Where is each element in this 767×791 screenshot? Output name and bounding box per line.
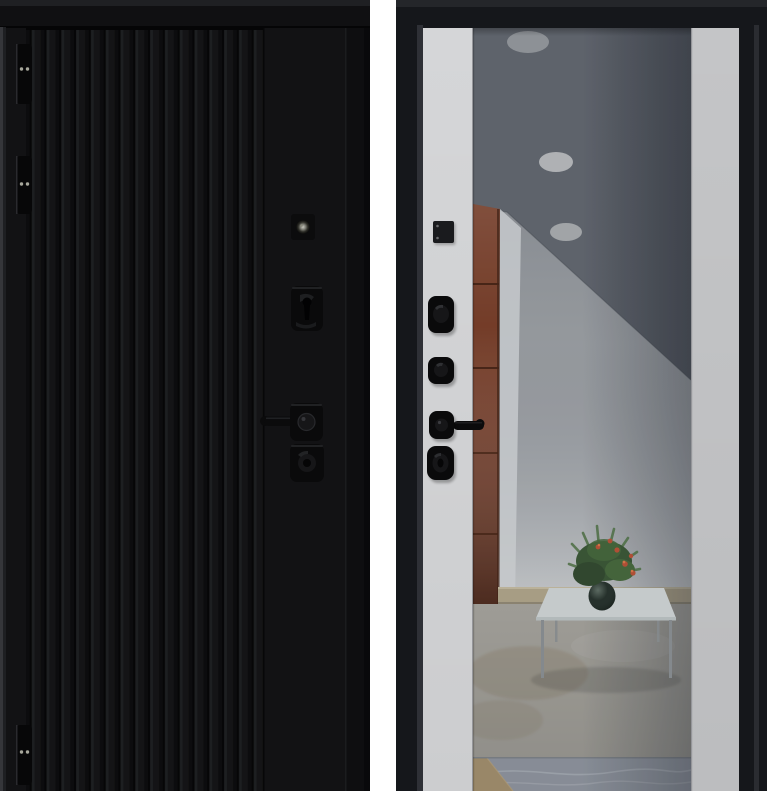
stile-seam [263, 28, 265, 791]
hinge-body [16, 44, 32, 104]
mirror-top-shadow [473, 28, 691, 36]
thumbturn-plate [433, 221, 456, 245]
hinge-highlight [16, 156, 18, 214]
hinge-screw [20, 750, 23, 753]
product-image [0, 0, 767, 791]
deadbolt-escutcheon [291, 286, 323, 331]
trim-shading [691, 28, 739, 791]
lock-escutcheon [428, 357, 456, 387]
top-band-shadow-line [0, 26, 370, 28]
door-hinge-bottom [16, 725, 32, 785]
boss-glint [302, 417, 306, 421]
interior-door [396, 0, 767, 791]
hinge-screw [26, 182, 29, 185]
frame-bevel-left [417, 25, 423, 791]
hinge-body [16, 725, 32, 785]
lever-highlight [266, 418, 294, 420]
hinge-screw [20, 67, 23, 70]
hinge-screw [26, 750, 29, 753]
cylinder-escutcheon [290, 444, 324, 482]
hinge-highlight [16, 44, 18, 104]
hinge-highlight [16, 725, 18, 785]
peephole [291, 214, 315, 240]
door-right-edge-dark [364, 28, 370, 791]
peephole-glint [300, 224, 303, 227]
hinge-body [16, 156, 32, 214]
mirror-left-shadow [473, 28, 479, 791]
white-trim-left [423, 28, 473, 791]
door-illustration [0, 0, 767, 791]
door-left-edge [0, 27, 3, 791]
frame-top-cap [396, 0, 767, 7]
door-left-edge-inner [3, 27, 6, 791]
trim-shading [423, 28, 473, 791]
fluted-panel [26, 28, 264, 791]
knob-core [438, 459, 444, 468]
cylinder-core [303, 459, 311, 467]
hinge-screw [20, 182, 23, 185]
rose-highlight [291, 404, 322, 406]
hinge-screw [26, 67, 29, 70]
fluted-panel-top-line [26, 28, 264, 30]
mirror [459, 28, 691, 791]
trim-edge [691, 28, 692, 791]
door-hinge-top [16, 44, 32, 104]
plate-screw [436, 225, 439, 228]
door-top-cap [0, 0, 370, 6]
plate-body [433, 221, 454, 243]
cylinder-knob [427, 446, 456, 483]
boss-glint [438, 421, 441, 424]
keyhole-slot [304, 305, 310, 320]
night-latch-knob [428, 296, 456, 336]
exterior-door [0, 0, 370, 791]
escutcheon-highlight [291, 445, 323, 447]
lever-highlight [455, 422, 482, 424]
mirror-glass-tint [473, 28, 691, 791]
white-trim-right [691, 28, 739, 791]
frame-bevel-right [754, 25, 759, 791]
plate-screw [436, 237, 439, 240]
door-hinge-middle [16, 156, 32, 214]
handle-boss [435, 419, 448, 432]
rebate-edge-line [345, 28, 347, 791]
peephole-lens [296, 220, 310, 234]
escutcheon-highlight [292, 287, 322, 289]
